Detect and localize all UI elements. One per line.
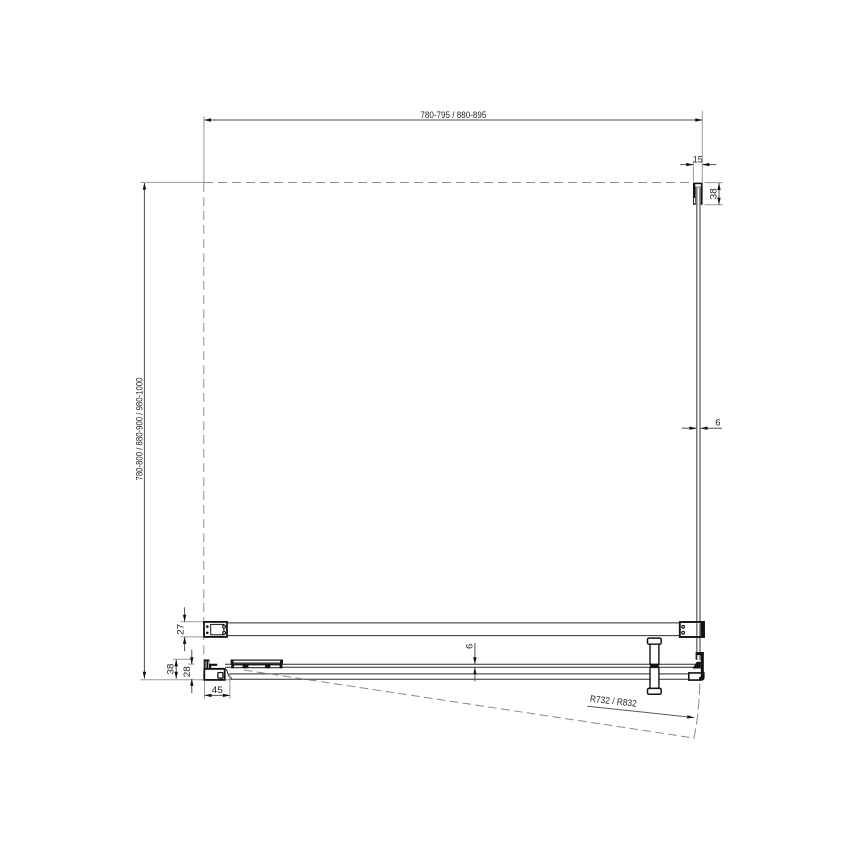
svg-text:15: 15	[693, 154, 703, 165]
svg-text:780-795 / 880-895: 780-795 / 880-895	[420, 110, 486, 121]
svg-text:6: 6	[465, 644, 476, 649]
svg-text:6: 6	[715, 418, 720, 429]
svg-text:27: 27	[175, 624, 186, 635]
svg-text:38: 38	[708, 188, 719, 199]
svg-text:28: 28	[182, 666, 193, 677]
svg-text:45: 45	[212, 685, 223, 696]
svg-text:780-800 / 880-900 / 980-1000: 780-800 / 880-900 / 980-1000	[134, 378, 145, 481]
svg-text:38: 38	[166, 664, 177, 675]
